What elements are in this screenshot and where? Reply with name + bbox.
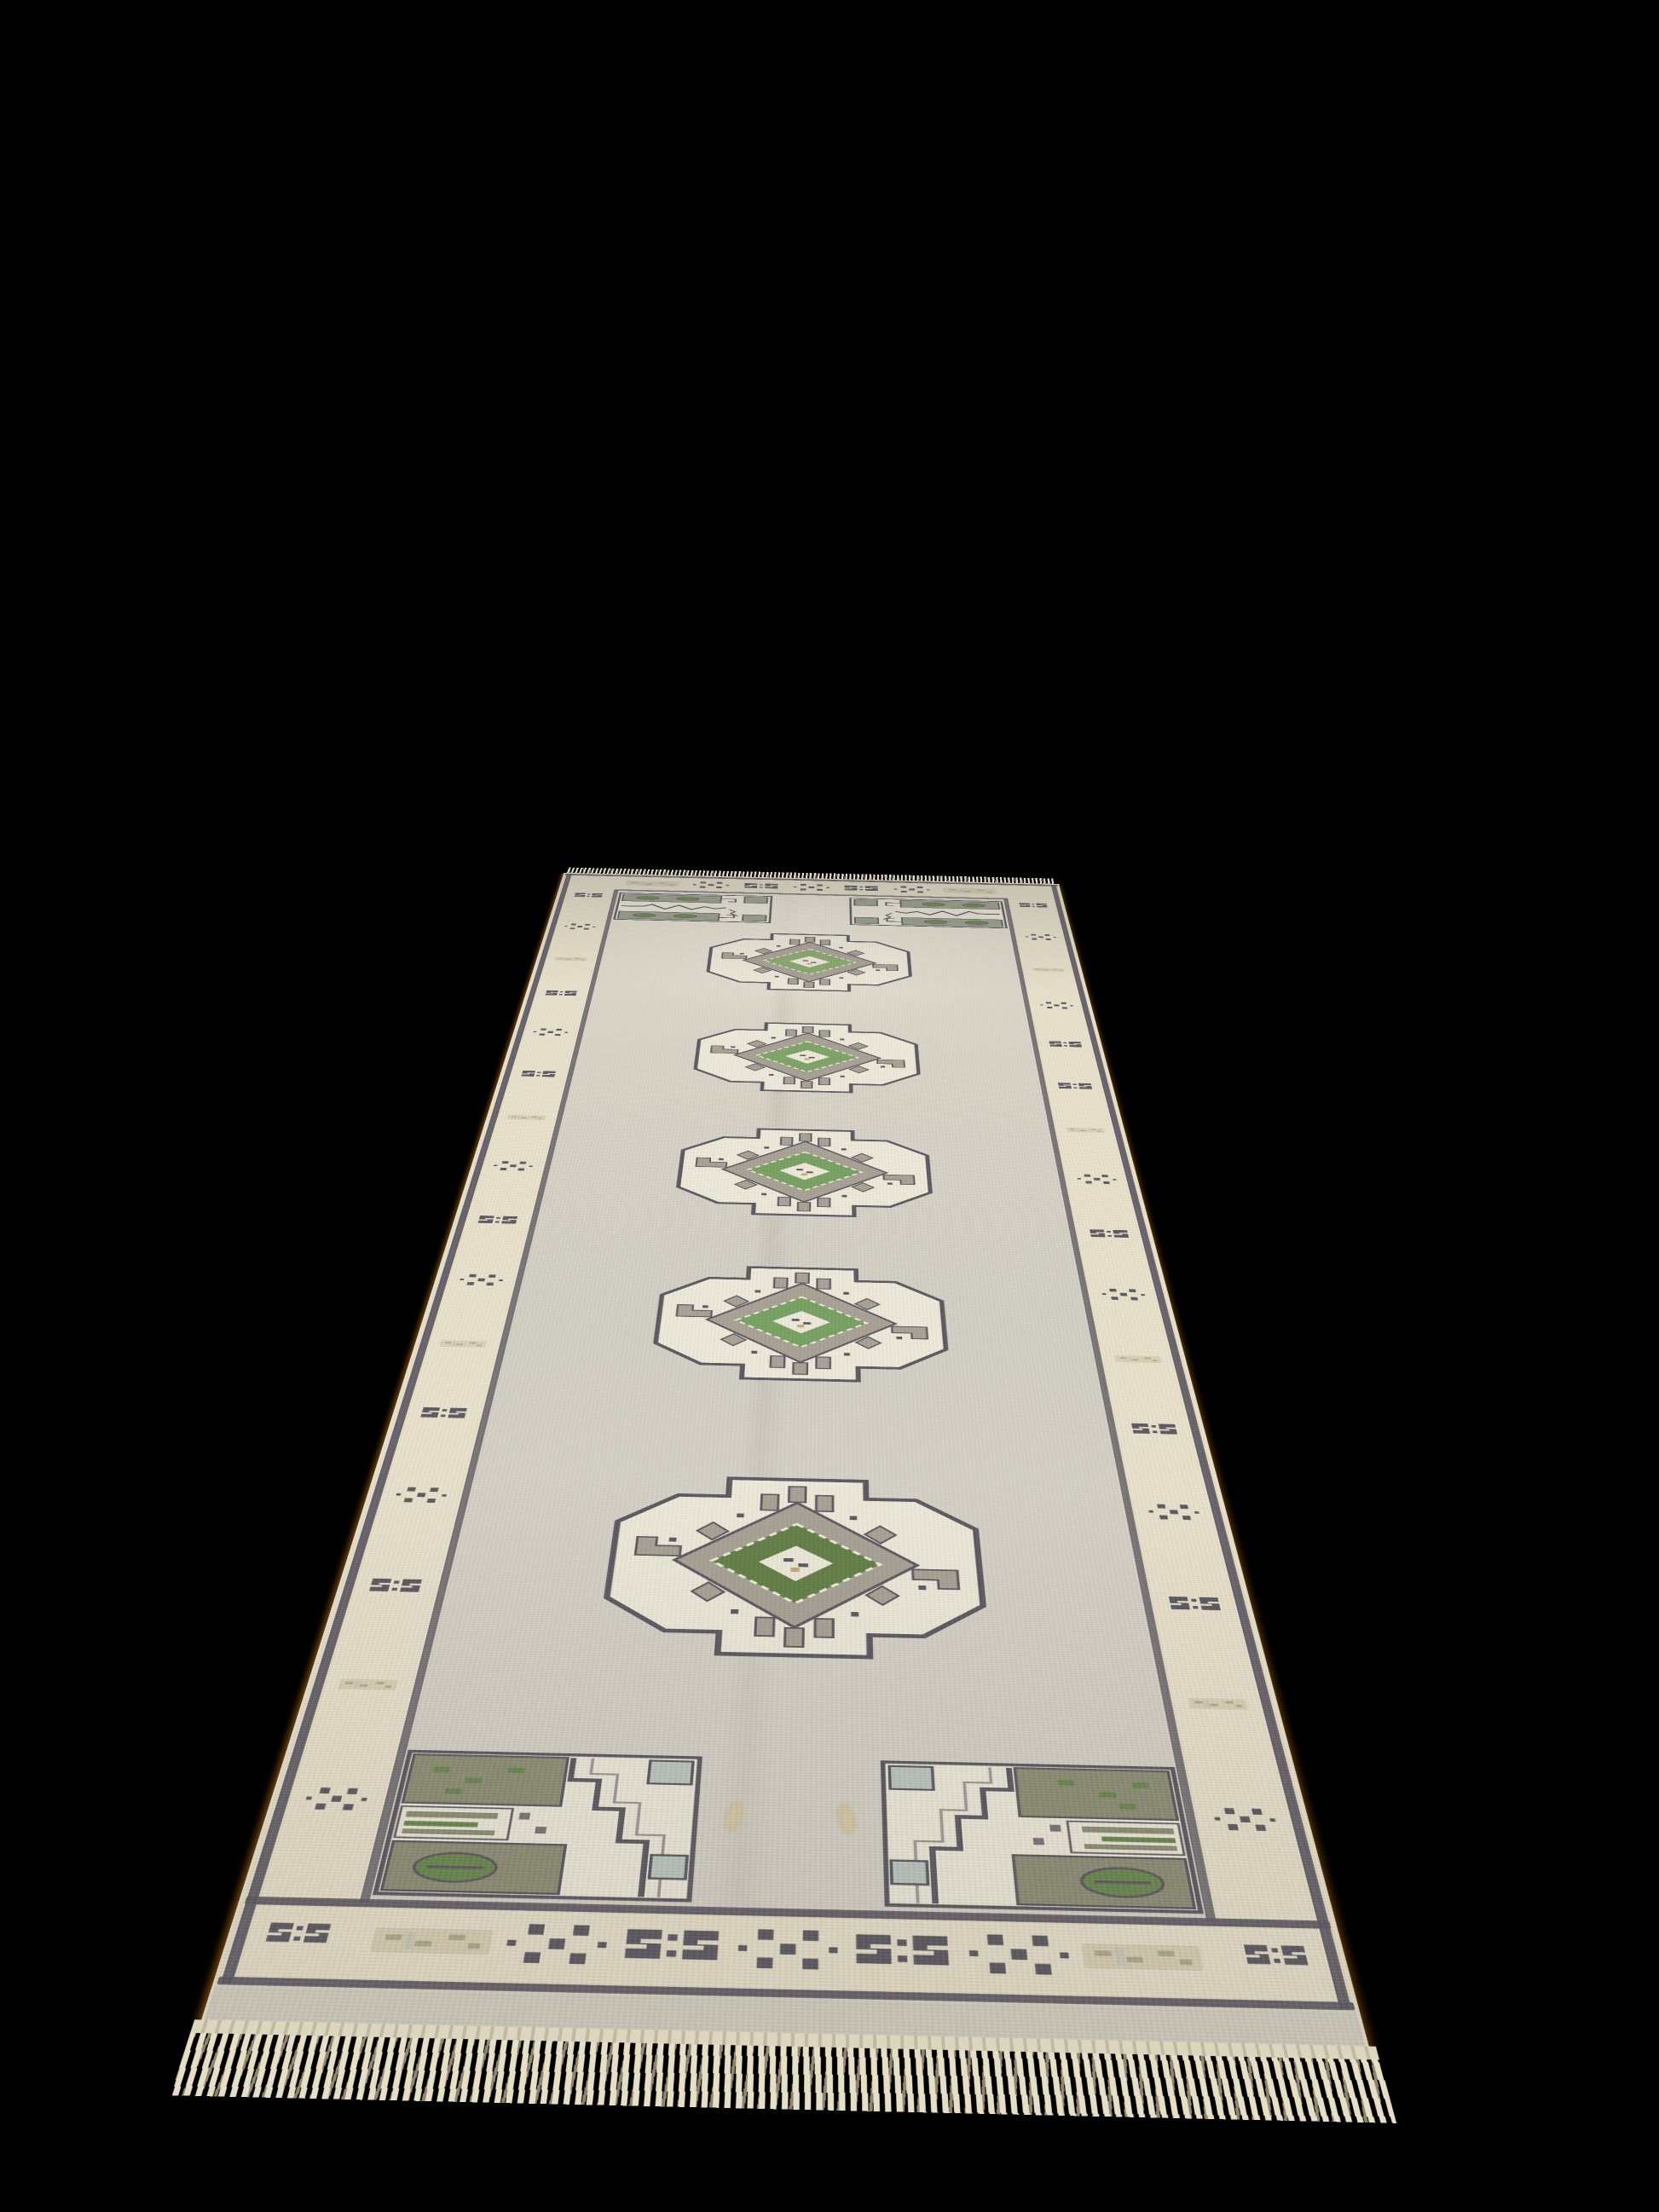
medallion-4 — [598, 1257, 1002, 1392]
x-star-motif — [964, 1929, 1073, 1978]
rug — [201, 873, 1369, 2047]
x-star-motif — [392, 1485, 450, 1505]
x-star-motif — [1145, 1502, 1202, 1522]
corner-bracket-bottom-right — [881, 1760, 1204, 1914]
faded-block-motif — [1065, 1127, 1105, 1134]
s-block-motif — [518, 1070, 558, 1078]
faded-block-motif — [553, 956, 588, 962]
faded-block-motif — [1113, 1354, 1163, 1364]
s-block-motif — [1165, 1595, 1225, 1613]
x-star-motif — [792, 883, 830, 892]
corner-bracket-top-right — [848, 898, 1009, 928]
faded-block-motif — [438, 1339, 488, 1349]
corner-bracket-bottom-left — [373, 1750, 702, 1903]
x-star-motif — [1075, 1173, 1119, 1185]
medallion-5 — [529, 1464, 1059, 1674]
x-star-motif — [300, 1785, 371, 1813]
faded-block-motif — [336, 1678, 399, 1692]
x-star-motif — [500, 1919, 611, 1968]
x-star-motif — [893, 886, 931, 894]
faded-block-motif — [506, 1114, 547, 1121]
s-block-motif — [1087, 1228, 1132, 1239]
s-block-motif — [475, 1215, 520, 1226]
s-block-motif — [543, 990, 580, 996]
s-block-motif — [1240, 1943, 1314, 1970]
corner-bracket-top-left — [612, 892, 774, 923]
x-star-motif — [491, 1160, 535, 1172]
s-block-motif — [742, 882, 780, 889]
x-star-motif — [1038, 1001, 1075, 1009]
s-block-motif — [617, 1926, 725, 1967]
x-star-motif — [457, 1273, 506, 1287]
s-block-motif — [1055, 1082, 1095, 1090]
x-star-motif — [531, 1027, 569, 1037]
medallion-1 — [669, 928, 948, 997]
x-star-motif — [734, 1924, 840, 1973]
s-block-motif — [417, 1406, 471, 1421]
faded-block-motif — [942, 887, 997, 895]
medallion-3 — [628, 1121, 978, 1225]
s-block-motif — [1017, 903, 1049, 909]
x-star-motif — [1024, 933, 1058, 941]
faded-block-motif — [624, 880, 680, 887]
photo-scene — [0, 0, 1659, 2212]
s-block-motif — [1128, 1422, 1181, 1436]
x-star-motif — [1210, 1805, 1280, 1834]
s-block-motif — [1047, 1041, 1084, 1048]
medallion-2 — [652, 1017, 961, 1100]
s-block-motif — [842, 885, 881, 892]
faded-block-motif — [1079, 1940, 1206, 1973]
x-star-motif — [563, 922, 597, 930]
faded-block-motif — [1187, 1696, 1249, 1711]
x-star-motif — [691, 881, 731, 889]
s-block-motif — [572, 892, 604, 898]
faded-block-motif — [1031, 967, 1065, 973]
s-block-motif — [260, 1920, 336, 1947]
s-block-motif — [850, 1931, 956, 1972]
s-block-motif — [365, 1577, 425, 1595]
faded-block-motif — [367, 1924, 496, 1957]
x-star-motif — [1099, 1287, 1147, 1302]
